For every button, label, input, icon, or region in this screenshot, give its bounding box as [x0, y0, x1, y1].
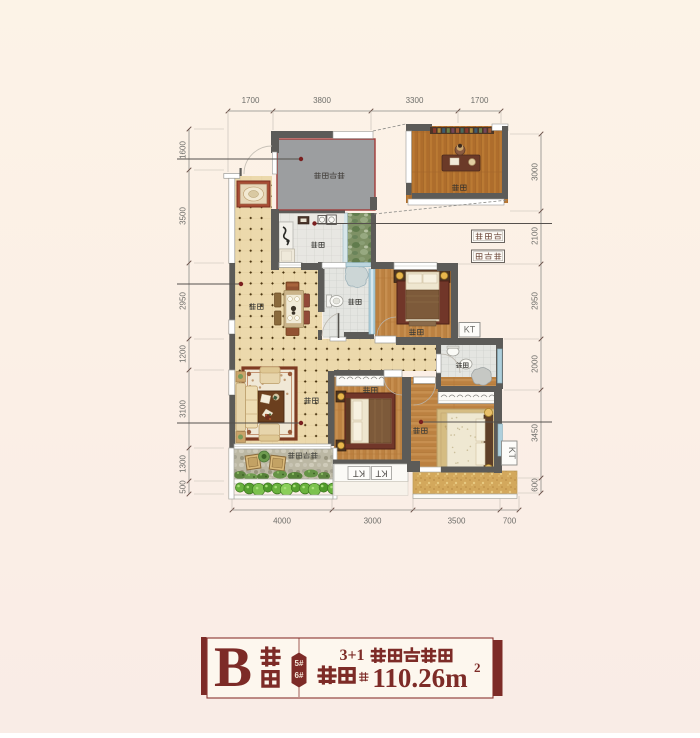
svg-text:1600: 1600 [179, 141, 188, 159]
svg-text:KT: KT [464, 325, 476, 335]
svg-text:3300: 3300 [406, 96, 424, 105]
svg-text:1700: 1700 [471, 96, 489, 105]
svg-text:3500: 3500 [179, 207, 188, 225]
svg-text:6#: 6# [295, 671, 304, 680]
svg-text:KT: KT [506, 447, 517, 459]
svg-text:1200: 1200 [179, 345, 188, 363]
svg-text:110.26m: 110.26m [372, 663, 468, 693]
svg-text:1700: 1700 [242, 96, 260, 105]
svg-text:600: 600 [531, 478, 540, 492]
svg-text:700: 700 [503, 517, 517, 526]
svg-text:3000: 3000 [531, 163, 540, 181]
svg-text:3+1: 3+1 [339, 647, 364, 664]
svg-text:2100: 2100 [531, 227, 540, 245]
svg-text:3100: 3100 [179, 400, 188, 418]
svg-text:3000: 3000 [364, 517, 382, 526]
svg-text:KT: KT [353, 468, 365, 479]
svg-text:B: B [214, 636, 252, 699]
svg-text:3800: 3800 [313, 96, 331, 105]
svg-text:2950: 2950 [179, 292, 188, 310]
svg-text:KT: KT [375, 468, 387, 479]
svg-text:2: 2 [474, 660, 481, 675]
svg-text:5#: 5# [295, 659, 304, 668]
svg-text:3500: 3500 [448, 517, 466, 526]
svg-text:3450: 3450 [531, 424, 540, 442]
svg-text:4000: 4000 [273, 517, 291, 526]
svg-text:1300: 1300 [179, 455, 188, 473]
svg-text:500: 500 [179, 480, 188, 494]
svg-text:2000: 2000 [531, 355, 540, 373]
svg-text:2950: 2950 [531, 292, 540, 310]
